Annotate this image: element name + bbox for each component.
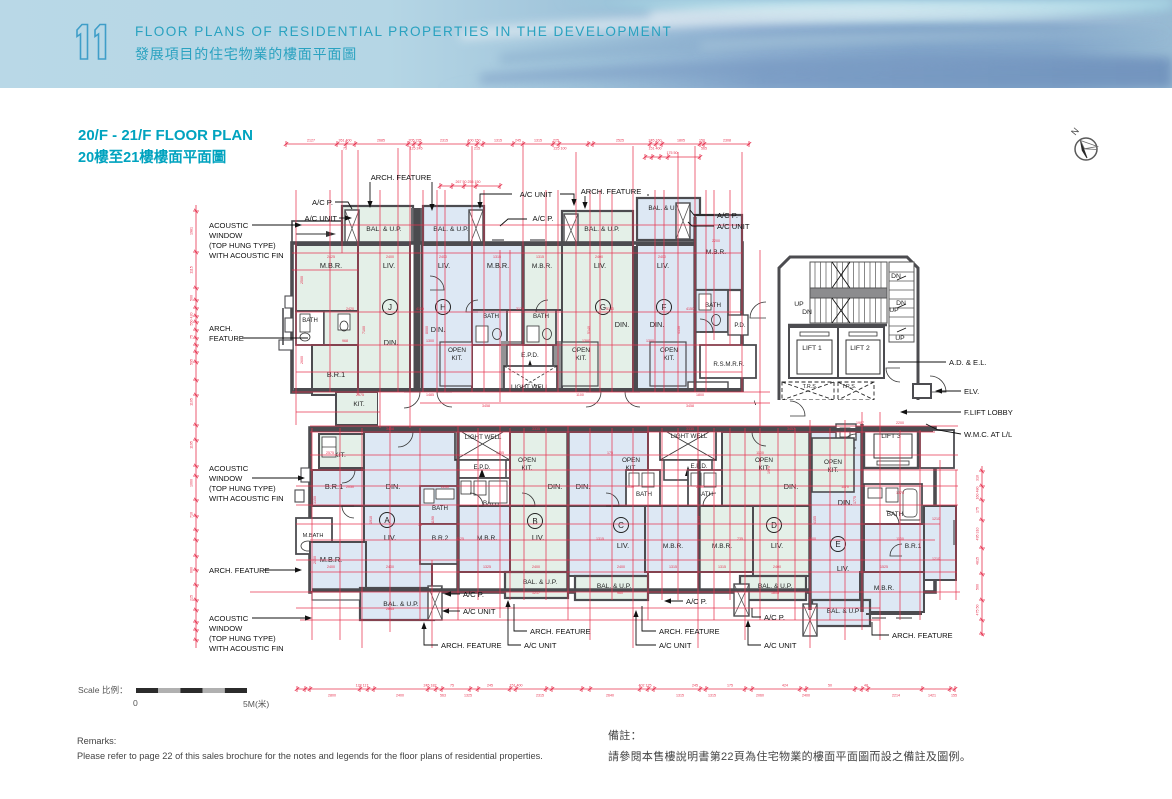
svg-text:2685: 2685 — [377, 139, 385, 143]
svg-text:ACOUSTIC: ACOUSTIC — [209, 614, 249, 623]
svg-text:D: D — [771, 521, 777, 530]
svg-text:475 50: 475 50 — [976, 605, 980, 616]
svg-text:225: 225 — [553, 139, 559, 143]
svg-text:1375: 1375 — [896, 491, 904, 495]
svg-text:1325: 1325 — [464, 694, 472, 698]
svg-text:M.B.R.: M.B.R. — [663, 543, 683, 550]
svg-text:75: 75 — [190, 335, 194, 339]
svg-text:1300: 1300 — [646, 339, 654, 343]
svg-text:2050: 2050 — [313, 556, 317, 564]
svg-text:A/C P.: A/C P. — [717, 211, 738, 220]
svg-text:175: 175 — [976, 507, 980, 513]
svg-text:1105: 1105 — [190, 398, 194, 406]
svg-text:1300: 1300 — [582, 339, 590, 343]
svg-text:1325: 1325 — [483, 565, 491, 569]
svg-text:KIT.: KIT. — [663, 355, 674, 362]
svg-text:205 225: 205 225 — [409, 139, 422, 143]
svg-text:M.BATH: M.BATH — [303, 533, 324, 539]
svg-text:E.P.D.: E.P.D. — [521, 352, 539, 359]
svg-text:1987: 1987 — [856, 421, 864, 425]
svg-text:KIT.: KIT. — [827, 467, 838, 474]
svg-text:B: B — [532, 517, 537, 526]
svg-text:3150: 3150 — [313, 496, 317, 504]
svg-text:151 400: 151 400 — [510, 684, 523, 688]
svg-text:2400: 2400 — [802, 694, 810, 698]
svg-text:261 400: 261 400 — [339, 139, 352, 143]
svg-text:N: N — [1069, 126, 1081, 137]
svg-text:C: C — [618, 521, 624, 530]
svg-text:W.M.C. AT L/L: W.M.C. AT L/L — [964, 430, 1012, 439]
svg-text:OPEN: OPEN — [660, 347, 678, 354]
svg-text:A/C UNIT: A/C UNIT — [659, 641, 692, 650]
svg-text:3170: 3170 — [516, 307, 524, 311]
svg-text:1210: 1210 — [932, 517, 940, 521]
svg-text:BAL. & U.P.: BAL. & U.P. — [433, 226, 468, 233]
svg-text:4150: 4150 — [686, 307, 694, 311]
svg-text:B.R.1: B.R.1 — [327, 370, 345, 379]
svg-text:KIT.: KIT. — [521, 465, 532, 472]
svg-text:ARCH. FEATURE: ARCH. FEATURE — [892, 631, 953, 640]
svg-text:BATH: BATH — [302, 318, 318, 324]
svg-text:2400: 2400 — [386, 565, 394, 569]
svg-text:563: 563 — [440, 694, 446, 698]
svg-text:1315: 1315 — [676, 694, 684, 698]
svg-text:A/C P.: A/C P. — [764, 613, 785, 622]
svg-text:710: 710 — [190, 512, 194, 518]
svg-text:1455: 1455 — [496, 451, 504, 455]
svg-text:2600: 2600 — [300, 356, 304, 364]
svg-text:267 50 255 150: 267 50 255 150 — [456, 180, 481, 184]
svg-text:2575: 2575 — [326, 451, 334, 455]
svg-text:BAL. & U.P: BAL. & U.P — [827, 608, 859, 615]
svg-text:175: 175 — [607, 451, 613, 455]
svg-text:1060: 1060 — [190, 479, 194, 487]
svg-text:128 117: 128 117 — [356, 684, 369, 688]
svg-text:968: 968 — [342, 339, 348, 343]
svg-text:1805: 1805 — [677, 139, 685, 143]
svg-text:2845: 2845 — [386, 607, 394, 611]
svg-text:DIN.: DIN. — [431, 325, 446, 334]
svg-text:LIV.: LIV. — [383, 261, 395, 270]
svg-text:UP: UP — [889, 307, 899, 314]
svg-text:(TOP HUNG TYPE): (TOP HUNG TYPE) — [209, 241, 276, 250]
svg-text:A/C UNIT: A/C UNIT — [524, 641, 557, 650]
svg-text:ARCH. FEATURE: ARCH. FEATURE — [659, 627, 720, 636]
svg-text:OPEN: OPEN — [824, 459, 842, 466]
svg-text:160 480: 160 480 — [976, 487, 980, 500]
svg-text:2400: 2400 — [532, 565, 540, 569]
svg-text:2200: 2200 — [712, 239, 720, 243]
svg-text:4155: 4155 — [697, 516, 701, 524]
svg-text:3458: 3458 — [686, 404, 694, 408]
svg-text:600: 600 — [190, 567, 194, 573]
svg-text:OPEN: OPEN — [622, 457, 640, 464]
svg-text:2400: 2400 — [617, 565, 625, 569]
svg-text:245: 245 — [692, 684, 698, 688]
svg-text:DIN.: DIN. — [548, 482, 563, 491]
svg-text:1805: 1805 — [771, 591, 779, 595]
svg-text:DN: DN — [891, 273, 901, 280]
svg-text:LIV.: LIV. — [532, 533, 544, 542]
svg-text:1115: 1115 — [190, 266, 194, 273]
svg-text:225: 225 — [190, 595, 194, 601]
svg-text:1315: 1315 — [494, 139, 502, 143]
svg-text:500: 500 — [190, 295, 194, 301]
svg-text:1315: 1315 — [708, 694, 716, 698]
svg-text:M.B.R.: M.B.R. — [320, 555, 342, 564]
svg-text:ARCH. FEATURE: ARCH. FEATURE — [209, 566, 270, 575]
svg-text:A/C UNIT: A/C UNIT — [305, 214, 338, 223]
svg-text:DIN.: DIN. — [784, 482, 799, 491]
svg-text:1910: 1910 — [369, 516, 373, 524]
svg-text:125 245: 125 245 — [410, 147, 423, 151]
svg-text:245: 245 — [515, 139, 521, 143]
svg-text:2050: 2050 — [346, 485, 354, 489]
svg-text:2127: 2127 — [307, 139, 315, 143]
svg-text:KIT.: KIT. — [451, 355, 462, 362]
svg-text:LIV.: LIV. — [771, 541, 783, 550]
svg-text:1210: 1210 — [932, 557, 940, 561]
svg-text:WINDOW: WINDOW — [209, 624, 243, 633]
svg-text:M.B.R.: M.B.R. — [532, 263, 552, 270]
svg-text:LIFT 3: LIFT 3 — [881, 433, 901, 440]
svg-text:245 182: 245 182 — [424, 684, 437, 688]
svg-text:245: 245 — [487, 684, 493, 688]
svg-text:1217: 1217 — [532, 591, 540, 595]
svg-text:A/C UNIT: A/C UNIT — [463, 607, 496, 616]
svg-text:KIT.: KIT. — [575, 355, 586, 362]
svg-text:DIN.: DIN. — [615, 320, 630, 329]
svg-text:3457: 3457 — [787, 427, 795, 431]
svg-text:4815: 4815 — [976, 557, 980, 565]
svg-text:4155: 4155 — [813, 516, 817, 524]
svg-text:1800: 1800 — [696, 393, 704, 397]
svg-text:T.R.S.: T.R.S. — [842, 384, 857, 390]
svg-text:1315: 1315 — [669, 565, 677, 569]
svg-text:735: 735 — [737, 537, 743, 541]
svg-text:LIGHT WELL: LIGHT WELL — [671, 433, 708, 440]
svg-text:T.R.S.: T.R.S. — [803, 384, 818, 390]
svg-text:75: 75 — [418, 523, 422, 527]
svg-text:WITH ACOUSTIC FIN: WITH ACOUSTIC FIN — [209, 644, 284, 653]
svg-text:151 400: 151 400 — [649, 147, 662, 151]
svg-text:J: J — [388, 303, 392, 312]
svg-text:DIN.: DIN. — [576, 482, 591, 491]
svg-text:FEATURE: FEATURE — [209, 334, 244, 343]
svg-text:48: 48 — [864, 684, 868, 688]
svg-text:2500: 2500 — [300, 276, 304, 284]
svg-text:5140: 5140 — [606, 307, 614, 311]
svg-text:OPEN: OPEN — [518, 457, 536, 464]
svg-text:B.R.1: B.R.1 — [905, 543, 922, 550]
svg-text:BATH: BATH — [432, 505, 448, 512]
svg-text:1100: 1100 — [756, 451, 764, 455]
svg-text:1981: 1981 — [190, 227, 194, 235]
svg-text:M.B.R.: M.B.R. — [487, 261, 509, 270]
svg-text:2420: 2420 — [346, 307, 354, 311]
svg-text:2060: 2060 — [756, 694, 764, 698]
svg-text:3458: 3458 — [482, 404, 490, 408]
svg-text:(TOP HUNG TYPE): (TOP HUNG TYPE) — [209, 634, 276, 643]
svg-text:2800: 2800 — [328, 694, 336, 698]
svg-text:2315: 2315 — [440, 139, 448, 143]
svg-text:75: 75 — [343, 147, 347, 151]
svg-text:3335: 3335 — [686, 427, 694, 431]
svg-text:1325: 1325 — [456, 537, 464, 541]
svg-text:M.B.R.: M.B.R. — [706, 249, 726, 256]
svg-text:ARCH.: ARCH. — [209, 324, 233, 333]
svg-text:2250: 2250 — [441, 485, 449, 489]
svg-text:1975: 1975 — [767, 466, 771, 474]
svg-text:BATH: BATH — [533, 313, 549, 320]
svg-text:WITH ACOUSTIC FIN: WITH ACOUSTIC FIN — [209, 251, 284, 260]
svg-text:1775: 1775 — [853, 496, 857, 504]
svg-text:4150: 4150 — [677, 326, 681, 334]
svg-text:ARCH. FEATURE: ARCH. FEATURE — [371, 173, 432, 182]
svg-text:M.B.R.: M.B.R. — [477, 535, 497, 542]
svg-text:B.R.1: B.R.1 — [325, 482, 343, 491]
svg-text:A/C UNIT: A/C UNIT — [764, 641, 797, 650]
svg-text:2525: 2525 — [616, 139, 624, 143]
svg-text:DIN.: DIN. — [386, 482, 401, 491]
svg-text:DN: DN — [896, 300, 906, 307]
svg-text:OPEN: OPEN — [448, 347, 466, 354]
svg-text:ELV.: ELV. — [964, 387, 979, 396]
svg-text:1315: 1315 — [534, 139, 542, 143]
svg-text:BAL. & U.P.: BAL. & U.P. — [366, 226, 401, 233]
svg-text:(TOP HUNG TYPE): (TOP HUNG TYPE) — [209, 484, 276, 493]
svg-text:960: 960 — [617, 591, 623, 595]
svg-text:LIV.: LIV. — [657, 261, 669, 270]
svg-text:225 100: 225 100 — [554, 147, 567, 151]
svg-text:595: 595 — [190, 359, 194, 365]
svg-text:7100: 7100 — [362, 326, 366, 334]
svg-text:2400: 2400 — [327, 565, 335, 569]
svg-text:1300: 1300 — [426, 339, 434, 343]
svg-text:DN: DN — [802, 309, 812, 316]
svg-text:310: 310 — [976, 475, 980, 481]
svg-text:ARCH. FEATURE: ARCH. FEATURE — [530, 627, 591, 636]
svg-text:LIFT 1: LIFT 1 — [802, 345, 822, 352]
svg-text:400 150: 400 150 — [468, 139, 481, 143]
svg-text:A/C UNIT: A/C UNIT — [520, 190, 553, 199]
svg-text:1170: 1170 — [841, 485, 849, 489]
svg-text:1525: 1525 — [880, 565, 888, 569]
svg-text:BATH: BATH — [705, 302, 721, 309]
svg-text:F.LIFT LOBBY: F.LIFT LOBBY — [964, 408, 1013, 417]
svg-text:175: 175 — [727, 684, 733, 688]
svg-text:WITH ACOUSTIC FIN: WITH ACOUSTIC FIN — [209, 494, 284, 503]
svg-text:A/C P.: A/C P. — [533, 214, 554, 223]
svg-text:5140: 5140 — [587, 326, 591, 334]
svg-text:M.B.R.: M.B.R. — [320, 261, 342, 270]
svg-text:215: 215 — [474, 147, 480, 151]
svg-text:1315: 1315 — [536, 255, 544, 259]
svg-text:1100: 1100 — [576, 393, 584, 397]
svg-text:BATH: BATH — [483, 313, 499, 320]
svg-text:1315: 1315 — [596, 537, 604, 541]
svg-text:155: 155 — [951, 694, 957, 698]
svg-text:A/C UNIT: A/C UNIT — [717, 222, 750, 231]
svg-text:OPEN: OPEN — [755, 457, 773, 464]
svg-text:A/C P.: A/C P. — [463, 590, 484, 599]
svg-text:UP: UP — [794, 301, 804, 308]
svg-text:402 125: 402 125 — [639, 684, 652, 688]
svg-text:2200: 2200 — [896, 421, 904, 425]
svg-text:2400: 2400 — [773, 565, 781, 569]
svg-text:1315: 1315 — [718, 565, 726, 569]
svg-text:2400: 2400 — [386, 255, 394, 259]
svg-text:50: 50 — [828, 684, 832, 688]
svg-text:2400: 2400 — [439, 255, 447, 259]
svg-text:150: 150 — [699, 139, 705, 143]
svg-text:KIT.: KIT. — [353, 401, 365, 408]
svg-text:1421: 1421 — [928, 694, 936, 698]
svg-text:2575: 2575 — [356, 393, 364, 397]
svg-text:M.B.R.: M.B.R. — [712, 543, 732, 550]
svg-text:A/C P.: A/C P. — [686, 597, 707, 606]
svg-text:75: 75 — [450, 684, 454, 688]
svg-text:OPEN: OPEN — [572, 347, 590, 354]
svg-text:P.D.: P.D. — [734, 322, 746, 329]
svg-text:2400: 2400 — [658, 255, 666, 259]
svg-text:M.B.R.: M.B.R. — [874, 585, 894, 592]
svg-text:8000: 8000 — [425, 326, 429, 334]
svg-text:DIN.: DIN. — [650, 320, 665, 329]
svg-text:LIV.: LIV. — [438, 261, 450, 270]
svg-text:2050: 2050 — [626, 485, 634, 489]
svg-text:175 50: 175 50 — [667, 151, 678, 155]
svg-text:2400: 2400 — [396, 694, 404, 698]
svg-text:1315: 1315 — [493, 255, 501, 259]
svg-text:245 160: 245 160 — [649, 139, 662, 143]
svg-text:LIFT 2: LIFT 2 — [850, 345, 870, 352]
svg-text:ARCH. FEATURE: ARCH. FEATURE — [441, 641, 502, 650]
svg-text:1100: 1100 — [896, 537, 904, 541]
svg-text:424: 424 — [782, 684, 788, 688]
svg-text:2214: 2214 — [892, 694, 900, 698]
svg-text:2400: 2400 — [595, 255, 603, 259]
svg-text:495 310: 495 310 — [976, 528, 980, 541]
svg-text:1195: 1195 — [190, 441, 194, 449]
svg-text:WINDOW: WINDOW — [209, 231, 243, 240]
svg-text:ACOUSTIC: ACOUSTIC — [209, 464, 249, 473]
svg-text:ARCH. FEATURE: ARCH. FEATURE — [581, 187, 642, 196]
svg-text:2640: 2640 — [606, 694, 614, 698]
svg-text:LIV.: LIV. — [617, 541, 629, 550]
svg-text:ACOUSTIC: ACOUSTIC — [209, 221, 249, 230]
svg-text:2050: 2050 — [696, 485, 704, 489]
svg-text:2315: 2315 — [536, 694, 544, 698]
svg-text:E: E — [835, 540, 840, 549]
svg-text:B.R.2: B.R.2 — [432, 535, 449, 542]
svg-text:550 420: 550 420 — [190, 313, 194, 326]
svg-text:2400: 2400 — [808, 537, 816, 541]
svg-text:A/C P.: A/C P. — [312, 198, 333, 207]
svg-text:2308: 2308 — [723, 139, 731, 143]
svg-text:4130: 4130 — [416, 307, 424, 311]
svg-text:DIN.: DIN. — [384, 338, 399, 347]
svg-text:3335: 3335 — [532, 427, 540, 431]
svg-text:2425: 2425 — [327, 255, 335, 259]
svg-text:BAL. & U.P.: BAL. & U.P. — [523, 579, 557, 586]
svg-text:1485: 1485 — [426, 393, 434, 397]
svg-text:WINDOW: WINDOW — [209, 474, 243, 483]
svg-text:BATH: BATH — [636, 491, 652, 498]
svg-text:1190: 1190 — [431, 516, 435, 524]
svg-text:R.S.M.R.R.: R.S.M.R.R. — [713, 361, 745, 368]
svg-text:UP: UP — [895, 335, 905, 342]
svg-text:565: 565 — [701, 147, 707, 151]
svg-text:3458: 3458 — [386, 427, 394, 431]
svg-text:500: 500 — [976, 584, 980, 590]
svg-text:A.D. & E.L.: A.D. & E.L. — [949, 358, 987, 367]
svg-text:LIGHT WELL: LIGHT WELL — [465, 434, 502, 441]
